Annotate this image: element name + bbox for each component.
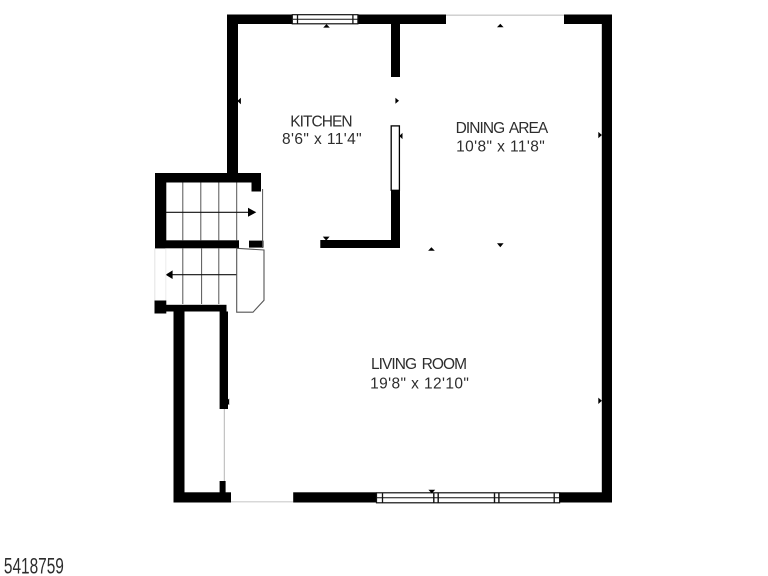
svg-text:5418759: 5418759	[4, 554, 64, 576]
svg-text:19'8" x 12'10": 19'8" x 12'10"	[370, 375, 469, 392]
svg-text:LIVING ROOM: LIVING ROOM	[371, 356, 466, 373]
svg-text:KITCHEN: KITCHEN	[290, 114, 351, 131]
svg-text:8'6" x 11'4": 8'6" x 11'4"	[282, 131, 362, 148]
svg-text:10'8" x 11'8": 10'8" x 11'8"	[456, 138, 545, 155]
svg-text:DINING AREA: DINING AREA	[456, 120, 549, 137]
